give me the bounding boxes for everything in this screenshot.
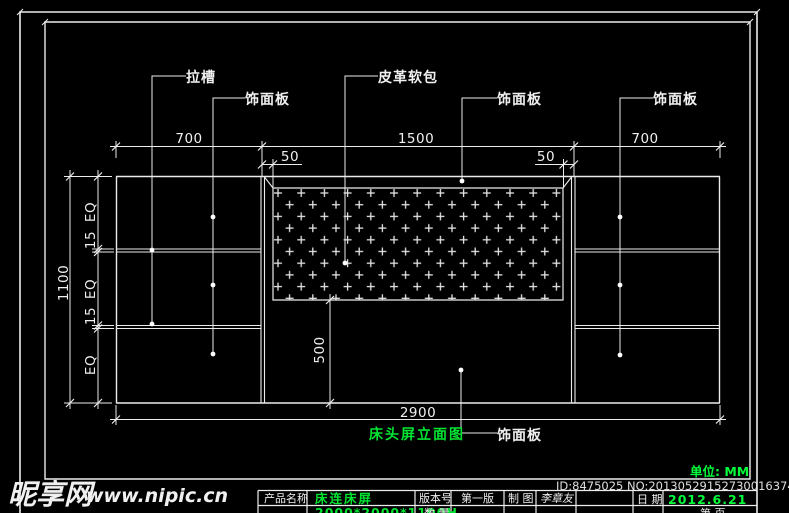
version-label: 版本号 [419,491,452,505]
dim-eq-2: EQ [83,279,99,299]
dim-700-left: 700 [175,131,202,147]
id-watermark: ID:8475025 NO:20130529152730016374 [556,479,789,493]
row2-qty-label: 数 量 [424,507,450,513]
cad-drawing-canvas: 拉槽 饰面板 皮革软包 饰面板 饰面板 饰面板 700 1500 700 50 … [0,0,789,513]
drawing-title: 床头屏立面图 [369,426,465,443]
dim-eq-1: EQ [83,202,99,222]
dim-2900: 2900 [400,405,436,421]
product-label: 产品名称 [264,491,308,505]
dim-15-1: 15 [83,231,99,249]
row2-page-label: 第 页 [700,506,726,513]
dim-15-2: 15 [83,307,99,325]
drafter-name: 李章友 [540,492,575,505]
dim-700-right: 700 [631,131,658,147]
drawing-svg: 拉槽 饰面板 皮革软包 饰面板 饰面板 饰面板 700 1500 700 50 … [0,0,789,513]
date-label: 日 期 [637,493,663,506]
dim-eq-3: EQ [83,355,99,375]
label-leather: 皮革软包 [377,69,438,86]
unit-note: 单位: MM [690,464,749,479]
dim-1100: 1100 [56,265,72,301]
label-veneer-bottom: 饰面板 [497,427,542,444]
label-groove: 拉槽 [186,69,216,86]
version-value: 第一版 [461,491,494,505]
dim-50-left: 50 [281,149,299,165]
label-veneer-right: 饰面板 [653,91,698,108]
dim-1500: 1500 [398,131,434,147]
label-veneer-center: 饰面板 [497,91,542,108]
site-url-watermark: www.nipic.cn [86,485,228,507]
product-name: 床连床屏 [315,491,373,506]
label-veneer-left: 饰面板 [245,91,290,108]
dim-50-right: 50 [537,149,555,165]
draft-label: 制 图 [508,492,534,505]
site-name-watermark: 昵享网 [8,478,96,511]
dim-500: 500 [312,336,328,363]
date-value: 2012.6.21 [668,492,747,507]
tufting-pattern [273,188,563,300]
